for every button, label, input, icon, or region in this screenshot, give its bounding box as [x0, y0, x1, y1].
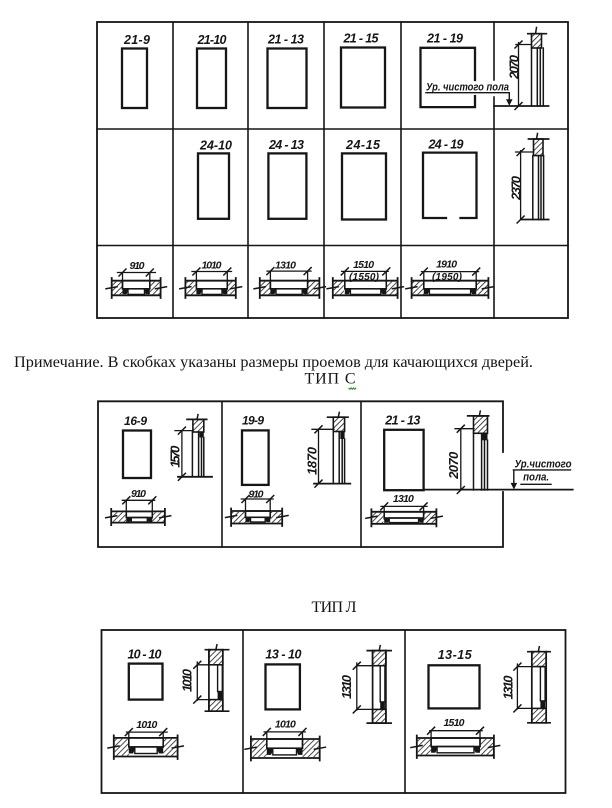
- svg-text:ТИП Л: ТИП Л: [312, 599, 357, 616]
- svg-text:1310: 1310: [275, 260, 296, 272]
- svg-text:13-15: 13-15: [438, 648, 473, 662]
- svg-text:ТИП С: ТИП С: [305, 371, 356, 388]
- svg-text:21 - 15: 21 - 15: [343, 32, 380, 46]
- svg-text:Примечание. В скобках указаны: Примечание. В скобках указаны размеры пр…: [14, 354, 533, 371]
- svg-text:16-9: 16-9: [124, 414, 147, 428]
- svg-text:(1550): (1550): [349, 272, 380, 283]
- svg-text:10 - 10: 10 - 10: [128, 648, 162, 662]
- svg-text:1570: 1570: [168, 445, 183, 468]
- svg-text:(1950): (1950): [432, 272, 463, 283]
- svg-text:24 - 13: 24 - 13: [268, 138, 304, 152]
- svg-text:21 - 13: 21 - 13: [384, 414, 420, 428]
- svg-text:910: 910: [131, 488, 146, 500]
- svg-text:21 - 19: 21 - 19: [426, 32, 463, 46]
- svg-text:19-9: 19-9: [242, 414, 264, 428]
- svg-text:2070: 2070: [446, 451, 461, 480]
- svg-text:Ур.чистого: Ур.чистого: [515, 459, 572, 471]
- svg-text:24-10: 24-10: [199, 139, 232, 153]
- svg-text:910: 910: [130, 260, 145, 272]
- svg-text:Ур. чистого пола: Ур. чистого пола: [426, 82, 509, 94]
- svg-text:1510: 1510: [353, 259, 374, 271]
- svg-text:24-15: 24-15: [345, 138, 381, 152]
- svg-text:13 - 10: 13 - 10: [265, 648, 301, 662]
- svg-text:910: 910: [249, 489, 264, 501]
- svg-text:24 - 19: 24 - 19: [428, 138, 464, 152]
- svg-text:1010: 1010: [275, 718, 296, 730]
- svg-text:1910: 1910: [436, 259, 457, 271]
- svg-text:21 - 13: 21 - 13: [267, 33, 304, 47]
- svg-text:1870: 1870: [305, 446, 320, 475]
- svg-text:1010: 1010: [136, 719, 157, 731]
- svg-text:2070: 2070: [506, 54, 521, 80]
- svg-text:1510: 1510: [444, 717, 465, 729]
- svg-text:1010: 1010: [180, 668, 195, 692]
- svg-text:пола.: пола.: [523, 472, 549, 484]
- svg-text:1310: 1310: [501, 675, 516, 700]
- svg-text:1310: 1310: [339, 674, 354, 699]
- svg-text:1310: 1310: [393, 493, 414, 505]
- svg-text:2370: 2370: [509, 175, 524, 201]
- svg-text:21-9: 21-9: [123, 33, 150, 47]
- svg-text:1010: 1010: [202, 260, 222, 272]
- svg-text:21-10: 21-10: [197, 33, 227, 47]
